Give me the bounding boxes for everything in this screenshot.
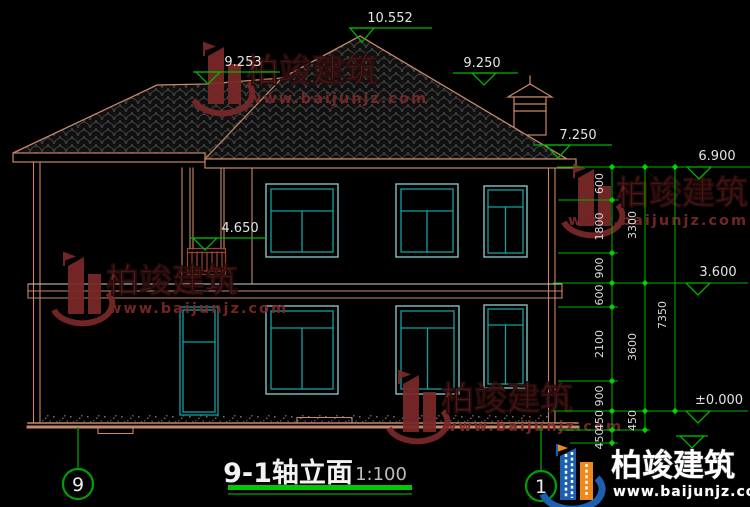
- watermark-url-text: www.baijunjz.com: [248, 91, 428, 107]
- watermark-brand-text: 柏竣建筑: [441, 379, 573, 418]
- dim-label: 600: [593, 173, 606, 194]
- dim-label: 450: [593, 410, 606, 431]
- left-step: [98, 428, 133, 434]
- dim-label: 1800: [593, 213, 606, 241]
- marker-foundation: [676, 436, 708, 448]
- chimney: [508, 76, 552, 135]
- marker-main-ridge-right: 9.250: [453, 56, 518, 85]
- watermark-logo-icon: [389, 370, 447, 441]
- marker-label: 10.552: [367, 11, 413, 26]
- dim-label: 600: [593, 285, 606, 306]
- marker-label: 9.250: [463, 56, 500, 71]
- dim-label: 3600: [626, 333, 639, 361]
- watermark-brand-text: 柏竣建筑: [246, 51, 378, 90]
- window-2f-right: [484, 186, 527, 257]
- window-2f-middle: [396, 184, 458, 257]
- marker-label: 6.900: [698, 149, 735, 164]
- watermark-left: 柏竣建筑 www.baijunjz.com: [54, 252, 288, 323]
- marker-label: 7.250: [559, 128, 596, 143]
- dim-label: 450: [626, 410, 639, 431]
- brand-url-text: www.baijunjz.com: [613, 484, 750, 500]
- marker-label: 9.253: [224, 55, 261, 70]
- marker-ground-level: ±0.000: [686, 393, 743, 423]
- watermark-logo-icon: [54, 252, 112, 323]
- window-1f-left: [266, 306, 338, 394]
- brand-name-text: 柏竣建筑: [611, 448, 735, 484]
- window-2f-left: [266, 184, 338, 257]
- dim-label: 2100: [593, 330, 606, 358]
- watermark-brand-text: 柏竣建筑: [616, 173, 748, 212]
- dim-label: 450: [593, 429, 606, 450]
- cad-elevation-drawing: 柏竣建筑 www.baijunjz.com 柏竣建筑 www.baijunjz.…: [0, 0, 750, 507]
- marker-balcony-rail: 4.650: [190, 221, 266, 250]
- drawing-canvas: 柏竣建筑 www.baijunjz.com 柏竣建筑 www.baijunjz.…: [0, 0, 750, 507]
- entry-door: [180, 307, 218, 415]
- dim-label: 900: [593, 258, 606, 279]
- marker-label: ±0.000: [695, 393, 743, 408]
- main-fascia: [205, 159, 576, 168]
- brand-logo: 柏竣建筑 www.baijunjz.com: [543, 444, 750, 507]
- axis-label-left: 9: [72, 474, 84, 496]
- watermark-url-text: www.baijunjz.com: [108, 301, 288, 317]
- marker-label: 4.650: [221, 221, 258, 236]
- watermark-brand-text: 柏竣建筑: [106, 261, 238, 300]
- title-block: 9-1轴立面 1:100: [223, 457, 412, 494]
- marker-second-floor: 3.600: [686, 265, 737, 295]
- dim-label: 7350: [656, 301, 669, 329]
- porch-fascia: [13, 153, 205, 162]
- marker-label: 3.600: [699, 265, 736, 280]
- dim-label: 3300: [626, 211, 639, 239]
- window-1f-right: [484, 305, 527, 388]
- drawing-title: 9-1轴立面: [223, 457, 353, 489]
- drawing-scale: 1:100: [355, 464, 407, 485]
- dim-label: 900: [593, 386, 606, 407]
